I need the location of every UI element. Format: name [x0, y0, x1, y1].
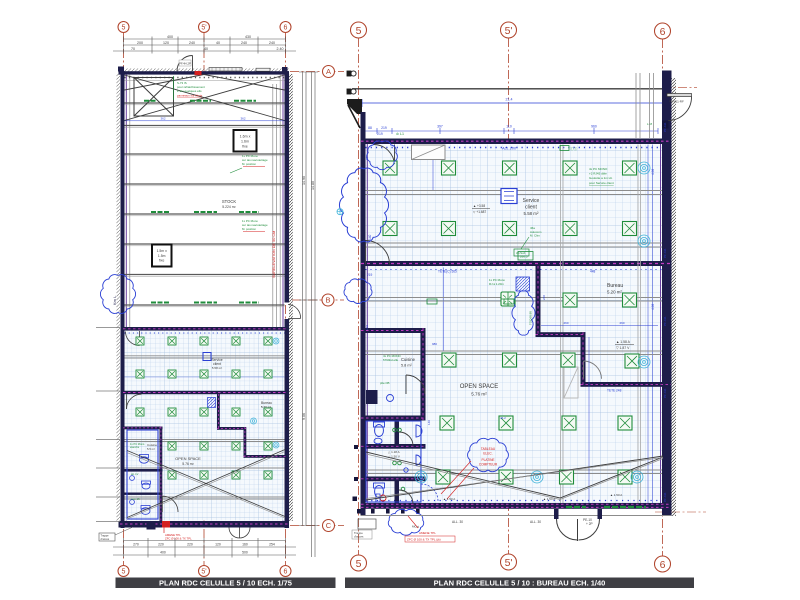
svg-text:220: 220	[187, 543, 193, 547]
svg-text:AMENE TPL: AMENE TPL	[419, 531, 436, 535]
svg-text:140: 140	[427, 420, 431, 425]
svg-text:120: 120	[215, 543, 221, 547]
svg-text:260.5: 260.5	[520, 255, 528, 259]
svg-text:etanche: etanche	[130, 445, 140, 449]
svg-text:5.58 m²: 5.58 m²	[212, 366, 222, 370]
svg-text:5.20 m²: 5.20 m²	[607, 290, 622, 295]
svg-text:TOQ68.88: TOQ68.88	[529, 311, 533, 325]
svg-text:STOCK: STOCK	[222, 199, 237, 204]
svg-text:d'acces: d'acces	[354, 535, 364, 539]
svg-text:6: 6	[660, 26, 666, 38]
svg-text:400: 400	[160, 551, 166, 555]
svg-text:Goulotte a 1m Ht.: Goulotte a 1m Ht.	[589, 176, 613, 180]
svg-text:▲ +3.58: ▲ +3.58	[473, 204, 485, 208]
svg-text:PF-411: PF-411	[663, 492, 667, 502]
svg-text:pour Service client: pour Service client	[589, 181, 614, 185]
svg-text:5.58 m²: 5.58 m²	[524, 211, 539, 216]
svg-text:PE-411-RF: PE-411-RF	[669, 100, 684, 104]
svg-text:▲ 1.50 A: ▲ 1.50 A	[443, 497, 455, 501]
svg-text:219: 219	[367, 273, 373, 277]
svg-text:5: 5	[122, 569, 126, 576]
svg-text:5.5 m²: 5.5 m²	[147, 447, 155, 451]
svg-text:Bureau: Bureau	[607, 283, 623, 289]
svg-text:5.8 m²: 5.8 m²	[401, 364, 412, 368]
svg-text:fixe: fixe	[242, 145, 248, 149]
svg-text:46.2: 46.2	[500, 416, 506, 420]
svg-text:9.06: 9.06	[302, 413, 306, 420]
svg-text:430: 430	[245, 35, 251, 39]
svg-text:4.98: 4.98	[651, 169, 655, 175]
svg-text:ALL. 30: ALL. 30	[452, 520, 463, 524]
svg-text:▽ +1.687: ▽ +1.687	[473, 210, 486, 214]
svg-text:panneaux sur filerie: panneaux sur filerie	[177, 94, 203, 98]
svg-text:5.224 m²: 5.224 m²	[222, 205, 236, 209]
svg-text:TABLEAU: TABLEAU	[481, 447, 496, 451]
svg-text:COMPTEUR: COMPTEUR	[479, 462, 498, 466]
svg-text:ALL.100: ALL.100	[501, 147, 517, 151]
svg-text:5': 5'	[505, 25, 513, 37]
svg-text:TETE(C) 565: TETE(C) 565	[438, 270, 457, 274]
svg-text:Cuisine: Cuisine	[401, 357, 416, 362]
svg-text:PLAN RDC CELULLE 5 / 10 ECH.: PLAN RDC CELULLE 5 / 10 ECH. 1/75	[159, 579, 292, 588]
svg-text:+2 RJ45 dble: +2 RJ45 dble	[589, 172, 607, 176]
svg-text:5.76 m²: 5.76 m²	[182, 462, 194, 466]
svg-text:SURELEVATION DE 50 CM: SURELEVATION DE 50 CM	[272, 231, 276, 278]
svg-text:PF-411: PF-411	[663, 316, 667, 326]
svg-text:▲ 1.58 A: ▲ 1.58 A	[616, 340, 631, 344]
svg-text:120: 120	[163, 41, 169, 45]
svg-text:21.4: 21.4	[506, 98, 513, 102]
svg-text:40: 40	[216, 41, 220, 45]
svg-text:fixe: fixe	[159, 259, 164, 263]
svg-text:448: 448	[590, 270, 596, 274]
svg-text:362: 362	[160, 117, 165, 121]
svg-text:M. position: M. position	[242, 227, 256, 231]
svg-text:88: 88	[368, 126, 372, 130]
svg-text:200: 200	[137, 41, 143, 45]
svg-text:ZFC Ø 100 & TX TPL (jb): ZFC Ø 100 & TX TPL (jb)	[407, 538, 441, 542]
svg-text:5.76 m²: 5.76 m²	[471, 392, 487, 397]
svg-text:140: 140	[368, 234, 372, 240]
svg-text:14.80: 14.80	[311, 181, 315, 190]
svg-text:PLAN RDC CELULLE 5 / 10 : BURE: PLAN RDC CELULLE 5 / 10 : BUREAU ECH. 1/…	[434, 579, 606, 588]
svg-text:OPEN SPACE: OPEN SPACE	[460, 384, 499, 390]
svg-text:RJ à 1.20m: RJ à 1.20m	[489, 282, 504, 286]
svg-text:5: 5	[122, 25, 126, 32]
svg-text:PF-411: PF-411	[663, 122, 667, 132]
svg-text:OPEN SPACE: OPEN SPACE	[175, 456, 201, 461]
svg-text:ⓘⓘ: ⓘⓘ	[570, 146, 578, 151]
svg-text:PF-411: PF-411	[663, 248, 667, 258]
svg-text:980: 980	[432, 342, 437, 346]
svg-text:1.5m: 1.5m	[158, 254, 166, 258]
svg-text:C: C	[326, 521, 332, 530]
svg-text:160: 160	[242, 543, 248, 547]
svg-text:M. Clim: M. Clim	[530, 234, 540, 238]
svg-text:5: 5	[356, 25, 362, 37]
svg-text:960: 960	[591, 125, 597, 129]
svg-text:40: 40	[204, 47, 208, 51]
svg-text:362: 362	[240, 117, 245, 121]
svg-text:2.40: 2.40	[277, 47, 284, 51]
svg-text:Service: Service	[523, 198, 540, 204]
svg-text:400: 400	[167, 35, 173, 39]
svg-text:240: 240	[189, 41, 195, 45]
svg-text:Km L: Km L	[112, 295, 117, 305]
svg-text:260: 260	[619, 321, 624, 325]
svg-text:4.98: 4.98	[651, 304, 655, 310]
svg-text:254: 254	[269, 543, 275, 547]
svg-text:219: 219	[377, 132, 383, 136]
svg-text:ELEC.: ELEC.	[483, 451, 492, 455]
svg-text:5': 5'	[201, 25, 206, 32]
svg-text:PF-411: PF-411	[663, 388, 667, 398]
svg-text:A: A	[326, 67, 331, 76]
svg-text:4x PC MONO: 4x PC MONO	[589, 167, 608, 171]
svg-text:▽ 1.87 V: ▽ 1.87 V	[616, 346, 630, 350]
svg-text:F-trio quelques elts: F-trio quelques elts	[177, 89, 202, 93]
svg-text:1.6m x: 1.6m x	[240, 135, 251, 139]
svg-text:▲ 1.50 A: ▲ 1.50 A	[610, 493, 622, 497]
svg-text:M. position: M. position	[242, 162, 256, 166]
svg-text:110: 110	[506, 125, 512, 129]
svg-text:⊘ L1: ⊘ L1	[396, 132, 404, 136]
svg-text:219: 219	[381, 126, 387, 130]
svg-text:5: 5	[356, 558, 362, 570]
svg-text:260: 260	[542, 295, 546, 300]
svg-text:att. LV: att. LV	[131, 472, 139, 476]
svg-text:△ 1.18 A: △ 1.18 A	[388, 450, 400, 454]
svg-text:70: 70	[131, 47, 135, 51]
svg-text:6: 6	[284, 569, 288, 576]
svg-text:219: 219	[365, 325, 369, 330]
svg-text:plte.CB: plte.CB	[380, 381, 390, 385]
svg-text:B: B	[325, 296, 330, 305]
svg-text:397: 397	[437, 125, 443, 129]
svg-text:88: 88	[365, 156, 369, 160]
svg-text:PF.4H.2P: PF.4H.2P	[179, 61, 191, 65]
svg-text:6: 6	[284, 25, 288, 32]
svg-text:TETE 248: TETE 248	[607, 389, 622, 393]
svg-text:1.6m: 1.6m	[241, 140, 249, 144]
svg-text:576/tbd elfe: 576/tbd elfe	[383, 358, 399, 362]
svg-text:1.5m x: 1.5m x	[157, 249, 167, 253]
svg-text:220: 220	[158, 543, 164, 547]
svg-text:260: 260	[563, 321, 568, 325]
svg-text:+ 2P: + 2P	[586, 522, 593, 526]
svg-text:ALL. 30: ALL. 30	[530, 520, 541, 524]
svg-text:500: 500	[242, 551, 248, 555]
svg-text:270: 270	[133, 543, 139, 547]
svg-text:5': 5'	[201, 569, 206, 576]
svg-text:cum 15: cum 15	[131, 497, 140, 501]
svg-text:5': 5'	[505, 557, 513, 569]
svg-text:6: 6	[660, 559, 666, 571]
svg-text:14.90: 14.90	[302, 176, 306, 185]
svg-text:PLATINE: PLATINE	[481, 458, 494, 462]
svg-text:ZFC Ø 100 & TX TPL: ZFC Ø 100 & TX TPL	[165, 537, 192, 541]
svg-text:240: 240	[241, 41, 247, 45]
svg-text:240: 240	[269, 41, 275, 45]
svg-text:▲ 1.50 A: ▲ 1.50 A	[543, 497, 555, 501]
svg-text:client: client	[525, 205, 537, 211]
svg-text:d'acces: d'acces	[101, 537, 110, 541]
